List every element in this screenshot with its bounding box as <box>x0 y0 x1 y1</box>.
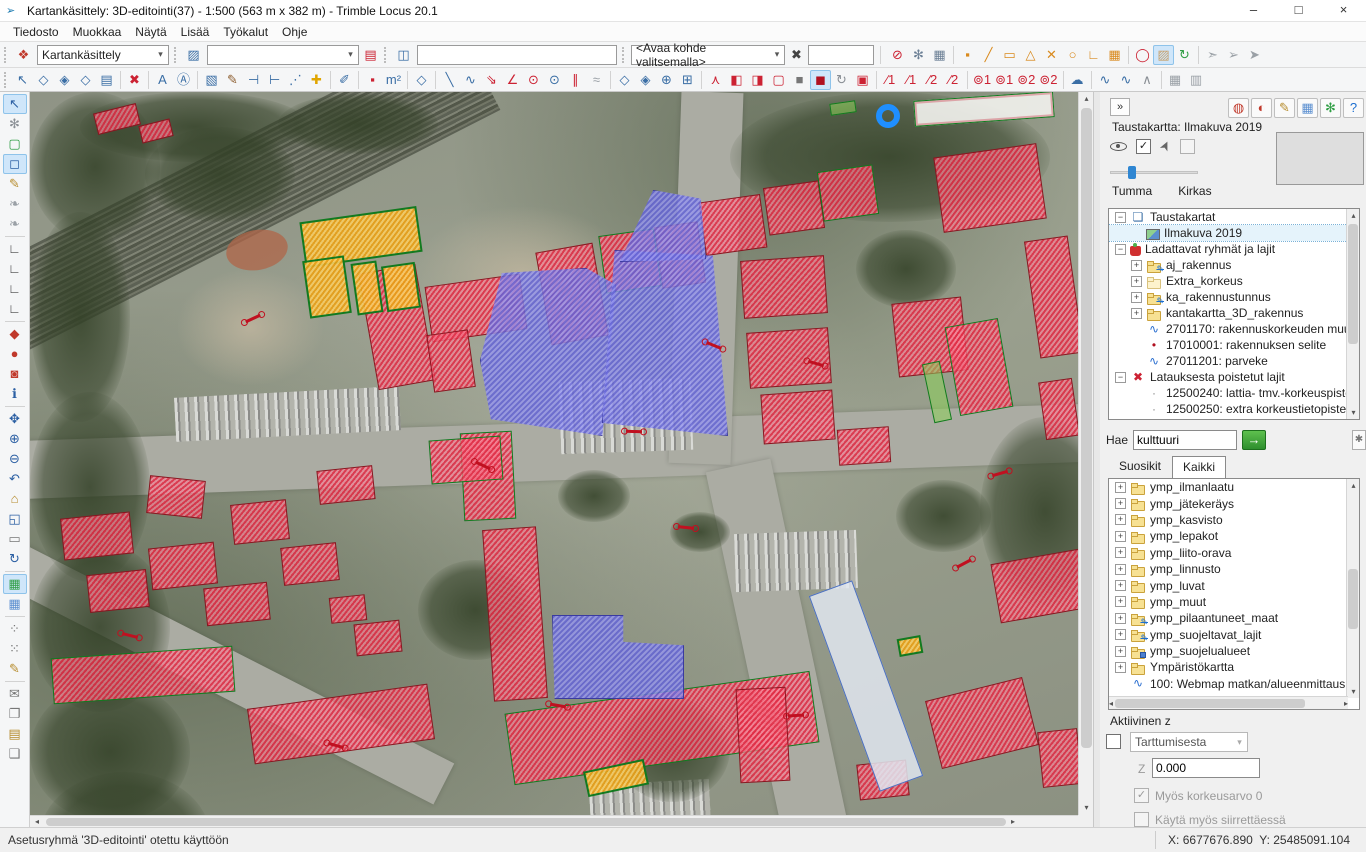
scroll-up-icon[interactable]: ▴ <box>1347 209 1360 222</box>
z-option-2: Käytä myös siirrettäessä <box>1134 812 1286 827</box>
toolbar-drag-handle[interactable] <box>384 47 388 63</box>
prev-view-icon[interactable]: ↶ <box>3 469 27 489</box>
map-canvas[interactable] <box>30 92 1078 815</box>
list-item-ymp-lepakot[interactable]: +ymp_lepakot <box>1109 528 1359 544</box>
layout-icon[interactable]: ❐ <box>3 704 27 724</box>
open-object-combo[interactable]: ▾ <box>207 45 359 65</box>
x-icon: ✖ <box>1130 371 1146 384</box>
item-label: ymp_jätekeräys <box>1150 497 1234 511</box>
scrollbar-thumb[interactable] <box>1081 108 1092 748</box>
building-r <box>763 180 825 235</box>
cube-3d-icon[interactable]: ◼ <box>810 70 831 90</box>
tree-canopy <box>278 94 438 154</box>
list-item-ymp-suojelualueet[interactable]: +ymp_suojelualueet <box>1109 643 1359 659</box>
parking-lot <box>734 530 858 592</box>
layer-list[interactable]: +ymp_ilmanlaatu+ymp_jätekeräys+ymp_kasvi… <box>1108 478 1360 710</box>
building-r <box>1037 728 1078 788</box>
draw-circle-icon[interactable]: ⊙ <box>523 70 544 90</box>
white-rect-icon[interactable]: ▭ <box>3 529 27 549</box>
open-by-select-combo[interactable]: <Avaa kohde valitsemalla>▾ <box>631 45 785 65</box>
item-label: 17010001: rakennuksen selite <box>1166 338 1326 352</box>
building-r <box>933 143 1047 233</box>
item-label: 12500240: lattia- tmv.-korkeuspiste <box>1166 386 1352 400</box>
background-preview <box>1276 132 1364 185</box>
tree-scrollbar[interactable]: ▴ ▾ <box>1346 209 1359 419</box>
fly-next-icon[interactable]: ➤ <box>1244 45 1265 65</box>
toolbar-icon-groups: ⊘✻▦▪╱▭△✕○∟▦◯▨↻➣➢➤ <box>887 45 1265 65</box>
image-settings-icon[interactable]: ▦ <box>1297 98 1318 118</box>
rotate-text-icon[interactable]: Ⓐ <box>173 70 194 90</box>
visibility-eye-icon[interactable] <box>1110 142 1127 151</box>
orbit-3d-icon[interactable]: ↻ <box>831 70 852 90</box>
tree-item-27011201-parveke[interactable]: ∿27011201: parveke <box>1109 353 1359 369</box>
layer-tree[interactable]: −❏TaustakartatIlmakuva 2019−Ladattavat r… <box>1108 208 1360 420</box>
menu-lisää[interactable]: Lisää <box>174 23 217 41</box>
expand-toggle-icon[interactable]: − <box>1115 372 1126 383</box>
list-item-ymp-j-teker-ys[interactable]: +ymp_jätekeräys <box>1109 495 1359 511</box>
building-r <box>316 465 375 505</box>
active-z-checkbox[interactable] <box>1106 734 1121 749</box>
red-dumbbell-marker <box>956 558 972 568</box>
stamp-1-icon[interactable]: ❧ <box>3 194 27 214</box>
draw-curve-icon[interactable]: ∿ <box>460 70 481 90</box>
jagged-line-icon[interactable]: ∧ <box>1137 70 1158 90</box>
map-vertical-scrollbar[interactable]: ▴ ▾ <box>1078 92 1093 815</box>
background-map-title: Taustakartta: Ilmakuva 2019 <box>1112 120 1262 134</box>
gear-green-icon[interactable]: ✻ <box>1320 98 1341 118</box>
dot-sm-icon: · <box>1146 403 1162 416</box>
item-label: ymp_muut <box>1150 595 1206 609</box>
open-map-icon[interactable]: ▨ <box>183 45 204 65</box>
building-r <box>837 426 891 466</box>
zoom-in-icon[interactable]: ⊕ <box>3 429 27 449</box>
tree-canopy <box>30 212 130 422</box>
tree-item-kantakartta-3d-rakennus[interactable]: +kantakartta_3D_rakennus <box>1109 305 1359 321</box>
menu-työkalut[interactable]: Työkalut <box>216 23 275 41</box>
level-1b-icon[interactable]: ⊚1 <box>993 70 1015 90</box>
tab-kaikki[interactable]: Kaikki <box>1172 456 1226 479</box>
corner-3-icon[interactable]: ∟ <box>3 279 27 299</box>
snap-move-icon[interactable]: ⊕ <box>656 70 677 90</box>
tree-item-2701170-rakennuskorkeuden-muutos[interactable]: ∿2701170: rakennuskorkeuden muutos <box>1109 321 1359 337</box>
menu-muokkaa[interactable]: Muokkaa <box>66 23 129 41</box>
item-label: 12500250: extra korkeustietopiste <box>1166 402 1346 416</box>
expand-toggle-icon[interactable]: + <box>1115 564 1126 575</box>
expand-toggle-icon[interactable]: + <box>1115 547 1126 558</box>
folder-icon <box>1130 563 1146 576</box>
background-visible-checkbox[interactable]: ✓ <box>1136 139 1151 154</box>
draw-line-orange-icon[interactable]: ╱ <box>978 45 999 65</box>
draw-line-icon[interactable]: ╲ <box>439 70 460 90</box>
select-buffer-icon[interactable]: ◈ <box>54 70 75 90</box>
list-item-ymp-luvat[interactable]: +ymp_luvat <box>1109 577 1359 593</box>
stamp-2-icon[interactable]: ❧ <box>3 214 27 234</box>
scroll-up-icon[interactable]: ▴ <box>1079 92 1094 106</box>
no-edit-icon[interactable]: ⊘ <box>887 45 908 65</box>
divide-line-icon[interactable]: ⋰ <box>285 70 306 90</box>
box-solid-icon[interactable]: ■ <box>789 70 810 90</box>
snap-diamond-icon[interactable]: ◇ <box>411 70 432 90</box>
item-label: Latauksesta poistetut lajit <box>1150 370 1285 384</box>
status-bar: Asetusryhmä '3D-editointi' otettu käyttö… <box>0 827 1366 852</box>
select-polygon-icon[interactable]: ◇ <box>33 70 54 90</box>
query-input[interactable] <box>417 45 617 65</box>
query-icon[interactable]: ◫ <box>393 45 414 65</box>
item-label: ymp_kasvisto <box>1150 513 1223 527</box>
folder-map-icon[interactable]: ▤ <box>3 724 27 744</box>
tree-canopy <box>558 470 630 522</box>
map-horizontal-scrollbar[interactable]: ◂ ▸ <box>30 815 1078 827</box>
draw-grid-orange-icon[interactable]: ▦ <box>1104 45 1125 65</box>
expand-toggle-icon[interactable]: + <box>1115 662 1126 673</box>
apply-red-icon[interactable]: ● <box>3 344 27 364</box>
building-r <box>699 194 768 256</box>
box-wire-icon[interactable]: ▢ <box>768 70 789 90</box>
list-item-ymp-suojeltavat-lajit[interactable]: +✎ymp_suojeltavat_lajit <box>1109 627 1359 643</box>
edit-note-icon[interactable]: ✎ <box>3 174 27 194</box>
tree-item-aj-rakennus[interactable]: +✎aj_rakennus <box>1109 257 1359 273</box>
tree-canopy <box>670 512 730 552</box>
building-r <box>426 329 476 392</box>
chevron-down-icon: ▾ <box>1232 737 1247 748</box>
expand-toggle-icon[interactable]: + <box>1131 308 1142 319</box>
minimize-button[interactable]: – <box>1231 0 1276 21</box>
send-map-icon[interactable]: ✉ <box>3 684 27 704</box>
building-o <box>897 635 924 657</box>
height-1-icon[interactable]: ∕1 <box>880 70 901 90</box>
load-group-icon[interactable]: ◍ <box>1228 98 1249 118</box>
toolbar-drag-handle[interactable] <box>174 47 178 63</box>
snap-point-icon[interactable]: ◇ <box>614 70 635 90</box>
left-tool-column: ↖✻▢◻✎❧❧∟∟∟∟◆●◙ℹ✥⊕⊖↶⌂◱▭↻▦▦⁘⁙✎✉❐▤❑ <box>0 92 30 827</box>
scroll-left-icon[interactable]: ◂ <box>30 817 44 826</box>
status-message: Asetusryhmä '3D-editointi' otettu käyttö… <box>0 833 229 847</box>
image-green-icon[interactable]: ▦ <box>3 574 27 594</box>
image-icon <box>1146 229 1160 240</box>
item-label: ymp_pilaantuneet_maat <box>1150 611 1278 625</box>
list-item-100-webmap-matkan-alueenmittaus[interactable]: ∿100: Webmap matkan/alueenmittaus <box>1109 676 1359 692</box>
building-r <box>925 677 1039 769</box>
maximize-button[interactable]: □ <box>1276 0 1321 21</box>
tree-item-extra-korkeus[interactable]: +Extra_korkeus <box>1109 273 1359 289</box>
folder-icon <box>1130 513 1146 526</box>
expand-toggle-icon[interactable]: + <box>1115 498 1126 509</box>
folder-edit-icon: ✎ <box>1130 612 1146 625</box>
list-item-ymp-rist-kartta[interactable]: +Ympäristökartta <box>1109 659 1359 675</box>
corner-2-icon[interactable]: ∟ <box>3 259 27 279</box>
building-r <box>746 327 832 389</box>
zoom-out-icon[interactable]: ⊖ <box>3 449 27 469</box>
z-option-2-checkbox[interactable] <box>1134 812 1149 827</box>
height-2b-icon[interactable]: ∕2 <box>943 70 964 90</box>
expand-toggle-icon[interactable]: − <box>1115 244 1126 255</box>
extend-line-icon[interactable]: ⊢ <box>264 70 285 90</box>
pointer-icon[interactable]: ↖ <box>3 94 27 114</box>
folder-icon <box>1130 661 1146 674</box>
box-faces-icon[interactable]: ◧ <box>726 70 747 90</box>
panel-collapse-button[interactable]: » <box>1110 98 1130 116</box>
refresh-map-icon[interactable]: ↻ <box>3 549 27 569</box>
building-r <box>230 499 290 545</box>
overview-icon[interactable]: ⌂ <box>3 489 27 509</box>
smooth-line-2-icon[interactable]: ∿ <box>1116 70 1137 90</box>
delete-object-icon[interactable]: ✖ <box>124 70 145 90</box>
scroll-left-icon[interactable]: ◂ <box>1109 699 1113 708</box>
z-mode-combo[interactable]: Tarttumisesta▾ <box>1130 732 1248 752</box>
coordinate-readout: X: 6677676.890 Y: 25485091.104 <box>1155 831 1366 849</box>
parallel-lines-icon[interactable]: ∥ <box>565 70 586 90</box>
scroll-up-icon[interactable]: ▴ <box>1347 479 1360 492</box>
box-edges-icon[interactable]: ◨ <box>747 70 768 90</box>
list-scrollbar[interactable]: ▴ ▾ <box>1346 479 1359 698</box>
building-r <box>329 594 368 624</box>
expand-toggle-icon[interactable]: + <box>1115 596 1126 607</box>
layers-icon: ❏ <box>1130 211 1146 224</box>
scrollbar-thumb[interactable] <box>46 818 1006 826</box>
folder-light-icon <box>1146 275 1162 288</box>
draw-corner-orange-icon[interactable]: ∟ <box>1083 45 1104 65</box>
item-label: Extra_korkeus <box>1166 274 1243 288</box>
corner-1-icon[interactable]: ∟ <box>3 239 27 259</box>
save-red-icon[interactable]: ◙ <box>3 364 27 384</box>
slider-thumb[interactable] <box>1128 166 1136 179</box>
corner-4-icon[interactable]: ∟ <box>3 299 27 319</box>
z-mode-value: Tarttumisesta <box>1135 735 1206 749</box>
draw-triangle-orange-icon[interactable]: △ <box>1020 45 1041 65</box>
list-item-ymp-muut[interactable]: +ymp_muut <box>1109 594 1359 610</box>
menu-näytä[interactable]: Näytä <box>128 23 173 41</box>
scroll-right-icon[interactable]: ▸ <box>1344 699 1348 708</box>
open-by-select-value: <Avaa kohde valitsemalla> <box>636 41 770 69</box>
expand-toggle-icon[interactable]: + <box>1115 646 1126 657</box>
draw-cross-orange-icon[interactable]: ✕ <box>1041 45 1062 65</box>
expand-toggle-icon[interactable]: + <box>1115 531 1126 542</box>
list-item-ymp-liito-orava[interactable]: +ymp_liito-orava <box>1109 545 1359 561</box>
grid-off-icon[interactable]: ▥ <box>1186 70 1207 90</box>
scroll-down-icon[interactable]: ▾ <box>1079 801 1094 815</box>
cursor-arrow-icon[interactable]: ➤ <box>1156 138 1175 155</box>
building-o <box>302 255 352 318</box>
clear-selection-icon[interactable]: ✖ <box>788 45 805 65</box>
tree-item-taustakartat[interactable]: −❏Taustakartat <box>1109 209 1359 225</box>
draw-rect-orange-icon[interactable]: ▭ <box>999 45 1020 65</box>
application-window: ➢ Kartankäsittely: 3D-editointi(37) - 1:… <box>0 0 1366 852</box>
expand-toggle-icon[interactable]: + <box>1115 613 1126 624</box>
building-r <box>60 511 134 560</box>
grid-pins-icon[interactable]: ⁘ <box>3 619 27 639</box>
hatch-fill-icon[interactable]: ▨ <box>1153 45 1174 65</box>
settings-gear-icon[interactable]: ✻ <box>908 45 929 65</box>
red-dumbbell-marker <box>626 430 642 434</box>
building-r <box>353 620 402 657</box>
building-r <box>86 569 150 613</box>
toolbar-drag-handle[interactable] <box>622 47 626 63</box>
item-label: ymp_ilmanlaatu <box>1150 480 1234 494</box>
item-label: ymp_suojeltavat_lajit <box>1150 628 1261 642</box>
tree-item-12500240-lattia-tmv-korkeuspiste[interactable]: ·12500240: lattia- tmv.-korkeuspiste <box>1109 385 1359 401</box>
list-item-ymp-pilaantuneet-maat[interactable]: +✎ymp_pilaantuneet_maat <box>1109 610 1359 626</box>
workspace-combo[interactable]: Kartankäsittely▾ <box>37 45 169 65</box>
gear-icon[interactable]: ✻ <box>3 114 27 134</box>
grid-fence-icon[interactable]: ▦ <box>929 45 950 65</box>
tab-suosikit[interactable]: Suosikit <box>1108 455 1172 478</box>
item-label: ymp_suojelualueet <box>1150 644 1250 658</box>
draw-angle-icon[interactable]: ∠ <box>502 70 523 90</box>
close-button[interactable]: × <box>1321 0 1366 21</box>
trim-line-icon[interactable]: ⊣ <box>243 70 264 90</box>
level-1-icon[interactable]: ⊚1 <box>971 70 993 90</box>
text-tool-icon[interactable]: A <box>152 70 173 90</box>
attribute-list-icon[interactable]: ▤ <box>96 70 117 90</box>
tree-item-17010001-rakennuksen-selite[interactable]: •17010001: rakennuksen selite <box>1109 337 1359 353</box>
folder-icon <box>1130 579 1146 592</box>
folder-icon <box>1130 497 1146 510</box>
building-r <box>482 526 548 701</box>
building-o <box>351 260 384 315</box>
menu-bar: TiedostoMuokkaaNäytäLisääTyökalutOhje <box>0 22 1366 42</box>
scrollbar-thumb[interactable] <box>1348 224 1358 344</box>
expand-toggle-icon[interactable]: + <box>1115 580 1126 591</box>
search-input[interactable] <box>1133 430 1237 450</box>
select-lasso-icon[interactable]: ◇ <box>75 70 96 90</box>
tree-item-ka-rakennustunnus[interactable]: +✎ka_rakennustunnus <box>1109 289 1359 305</box>
expand-toggle-icon[interactable]: + <box>1131 292 1142 303</box>
refresh-groups-icon[interactable]: ↻ <box>1174 45 1195 65</box>
expand-toggle-icon[interactable]: + <box>1131 260 1142 271</box>
list-horizontal-scrollbar[interactable]: ◂ ▸ <box>1109 696 1348 709</box>
item-label: aj_rakennus <box>1166 258 1231 272</box>
draw-point-orange-icon[interactable]: ▪ <box>957 45 978 65</box>
print-icon[interactable]: ❑ <box>3 744 27 764</box>
toolbar-drag-handle[interactable] <box>4 72 8 88</box>
image-icon[interactable]: ▦ <box>3 594 27 614</box>
list-item-ymp-linnusto[interactable]: +ymp_linnusto <box>1109 561 1359 577</box>
slider-track <box>1110 171 1198 174</box>
info-icon[interactable]: ℹ <box>3 384 27 404</box>
z-option-1-label: Myös korkeusarvo 0 <box>1155 789 1262 803</box>
grid-on-icon[interactable]: ▦ <box>1165 70 1186 90</box>
expand-toggle-icon[interactable]: + <box>1115 482 1126 493</box>
new-window-icon[interactable]: ❖ <box>13 45 34 65</box>
zoom-window-icon[interactable]: ◱ <box>3 509 27 529</box>
brightness-slider[interactable] <box>1110 166 1198 178</box>
extra-input[interactable] <box>808 45 874 65</box>
tree-item-ladattavat-ryhm-t-ja-lajit[interactable]: −Ladattavat ryhmät ja lajit <box>1109 241 1359 257</box>
right-side-panel: » ◍◐✎▦✻? Taustakartta: Ilmakuva 2019 ✓ ➤… <box>1100 92 1366 827</box>
draw-segment-icon[interactable]: ⇘ <box>481 70 502 90</box>
item-label: Taustakartat <box>1150 210 1215 224</box>
draw-point-icon[interactable]: ▪ <box>362 70 383 90</box>
draw-circle-orange-icon[interactable]: ○ <box>1062 45 1083 65</box>
slider-labels: Tumma Kirkas <box>1112 184 1262 198</box>
model-3d-icon[interactable]: ▣ <box>852 70 873 90</box>
pick-style-icon[interactable]: ✎ <box>222 70 243 90</box>
search-row: Hae → ✱ <box>1106 430 1364 450</box>
dot-sm-icon: · <box>1146 387 1162 400</box>
scroll-down-icon[interactable]: ▾ <box>1347 685 1360 698</box>
load-arrow-icon[interactable]: ◐ <box>1251 98 1272 118</box>
level-2b-icon[interactable]: ⊚2 <box>1037 70 1059 90</box>
pan-icon[interactable]: ✥ <box>3 409 27 429</box>
scrollbar-thumb[interactable] <box>1115 699 1305 708</box>
height-1b-icon[interactable]: ∕1 <box>901 70 922 90</box>
help-icon[interactable]: ? <box>1343 98 1364 118</box>
item-label: ymp_luvat <box>1150 579 1205 593</box>
snap-area-icon[interactable]: ◈ <box>635 70 656 90</box>
snap-label-icon[interactable]: ⊞ <box>677 70 698 90</box>
list-item-ymp-ilmanlaatu[interactable]: +ymp_ilmanlaatu <box>1109 479 1359 495</box>
expand-toggle-icon[interactable]: + <box>1115 629 1126 640</box>
grid-dots-icon[interactable]: ⁙ <box>3 639 27 659</box>
window-title: Kartankäsittely: 3D-editointi(37) - 1:50… <box>27 4 438 18</box>
panel-edge-button[interactable]: ✱ <box>1352 430 1366 450</box>
item-label: ka_rakennustunnus <box>1166 290 1271 304</box>
raster-edit-icon[interactable]: ▧ <box>201 70 222 90</box>
select-rect-icon[interactable]: ▢ <box>3 134 27 154</box>
building-rg <box>817 164 879 221</box>
menu-tiedosto[interactable]: Tiedosto <box>6 23 66 41</box>
red-ring-icon[interactable]: ◯ <box>1132 45 1153 65</box>
expand-toggle-icon[interactable]: + <box>1115 514 1126 525</box>
level-2-icon[interactable]: ⊚2 <box>1015 70 1037 90</box>
list-item-ymp-kasvisto[interactable]: +ymp_kasvisto <box>1109 512 1359 528</box>
building-r <box>740 255 828 319</box>
panel-splitter[interactable] <box>1093 92 1100 827</box>
building-b <box>618 190 706 262</box>
item-label: ymp_liito-orava <box>1150 546 1231 560</box>
tree-item-latauksesta-poistetut-lajit[interactable]: −✖Latauksesta poistetut lajit <box>1109 369 1359 385</box>
select-object-icon[interactable]: ↖ <box>12 70 33 90</box>
item-label: Ympäristökartta <box>1150 660 1234 674</box>
scrollbar-thumb[interactable] <box>1348 569 1358 629</box>
explode-3d-icon[interactable]: ⋏ <box>705 70 726 90</box>
background-lock-checkbox[interactable] <box>1180 139 1195 154</box>
cloud-icon[interactable]: ☁ <box>1067 70 1088 90</box>
fly-mid-icon[interactable]: ➢ <box>1223 45 1244 65</box>
tree-item-ilmakuva-2019[interactable]: Ilmakuva 2019 <box>1109 225 1359 241</box>
item-label: kantakartta_3D_rakennus <box>1166 306 1303 320</box>
folder-edit-icon: ✎ <box>1146 259 1162 272</box>
move-point-icon[interactable]: ✚ <box>306 70 327 90</box>
draw-arc-icon[interactable]: ⊙ <box>544 70 565 90</box>
menu-ohje[interactable]: Ohje <box>275 23 314 41</box>
scroll-right-icon[interactable]: ▸ <box>1006 817 1020 826</box>
background-map-controls: ✓ ➤ <box>1110 138 1195 154</box>
wave-icon: ∿ <box>1130 677 1146 690</box>
search-go-button[interactable]: → <box>1242 430 1266 450</box>
fly-prev-icon[interactable]: ➣ <box>1202 45 1223 65</box>
paint-red-icon[interactable]: ◆ <box>3 324 27 344</box>
panel-header-icons: ◍◐✎▦✻? <box>1228 98 1364 118</box>
smooth-line-icon[interactable]: ∿ <box>1095 70 1116 90</box>
select-round-icon[interactable]: ◻ <box>3 154 27 174</box>
brush-map-icon[interactable]: ✎ <box>3 659 27 679</box>
expand-toggle-icon[interactable]: + <box>1131 276 1142 287</box>
z-value-input[interactable] <box>1152 758 1260 778</box>
scroll-down-icon[interactable]: ▾ <box>1347 406 1360 419</box>
tree-item-12500250-extra-korkeustietopiste[interactable]: ·12500250: extra korkeustietopiste <box>1109 401 1359 417</box>
expand-toggle-icon[interactable]: − <box>1115 212 1126 223</box>
freehand-icon[interactable]: ≈ <box>586 70 607 90</box>
building-r <box>146 475 206 519</box>
edit-list-icon[interactable]: ✎ <box>1274 98 1295 118</box>
open-list-icon[interactable]: ▤ <box>362 45 379 65</box>
area-measure-icon[interactable]: m² <box>383 70 404 90</box>
height-2-icon[interactable]: ∕2 <box>922 70 943 90</box>
z-option-1-checkbox[interactable]: ✓ <box>1134 788 1149 803</box>
edit-vertex-icon[interactable]: ✐ <box>334 70 355 90</box>
toolbar-drag-handle[interactable] <box>4 47 8 63</box>
